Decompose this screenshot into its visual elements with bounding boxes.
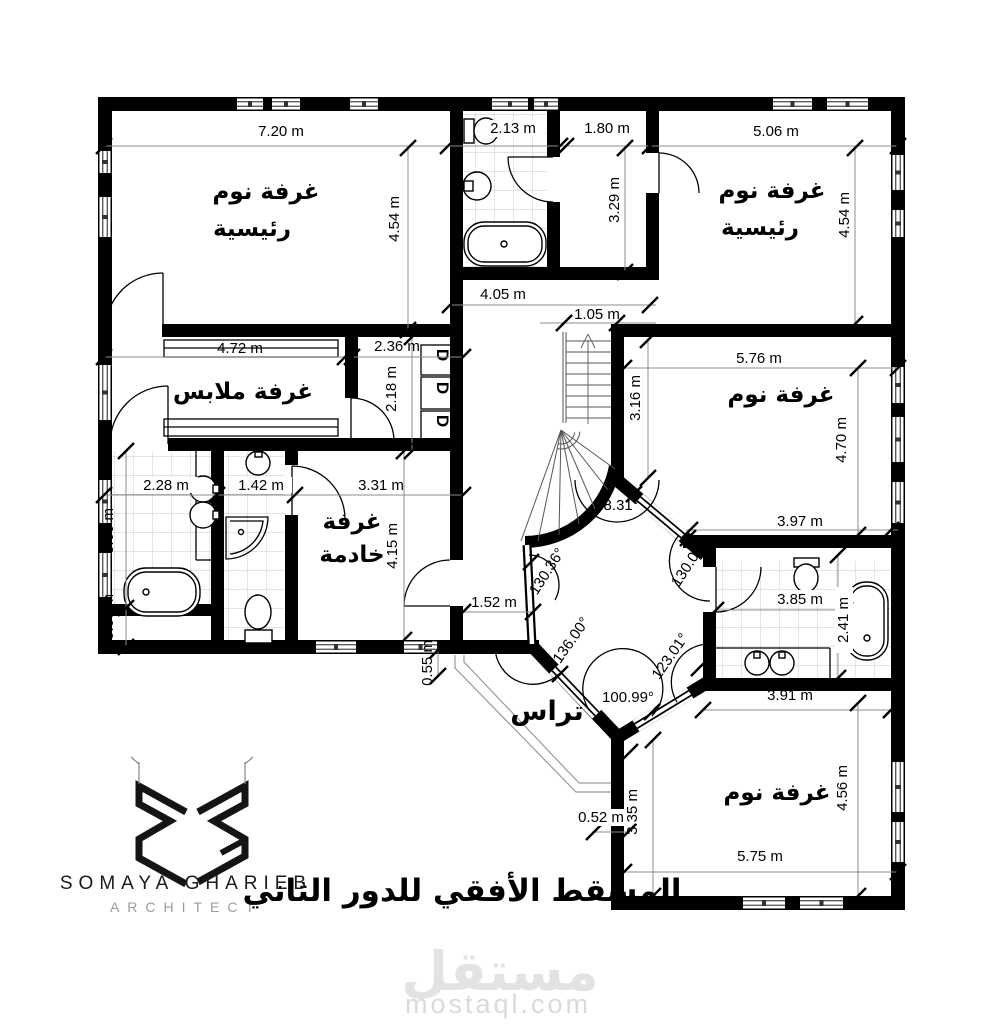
window [893, 762, 904, 812]
dim-5-76: 5.76 m [736, 350, 782, 367]
room-master-left-line2: رئيسية [213, 216, 291, 242]
closet-wardrobes: D D D [421, 345, 452, 441]
dim-2-18: 2.18 m [383, 366, 400, 412]
room-master-right-line2: رئيسية [721, 215, 799, 241]
room-master-right-line1: غرفة نوم [719, 178, 826, 204]
dim-0-60: 0.60 m [100, 594, 117, 640]
dim-4-56: 4.56 m [834, 765, 851, 811]
dim-4-54-left: 4.54 m [386, 196, 403, 242]
dim-2-13: 2.13 m [490, 120, 536, 137]
window [827, 99, 868, 110]
window [893, 155, 904, 190]
window [773, 99, 812, 110]
dim-3-16: 3.16 m [627, 375, 644, 421]
angle-123-01: 123.01° [648, 630, 692, 682]
closet-letter: D [433, 382, 452, 394]
sink-middle-bathroom [246, 451, 270, 475]
window [893, 417, 904, 462]
closet-letter: D [433, 349, 452, 361]
dim-1-80: 1.80 m [584, 120, 630, 137]
door-dressing-bathroom [110, 386, 168, 444]
room-maid-line2: خادمة [319, 542, 384, 568]
window [100, 365, 111, 420]
door-master-left [105, 273, 163, 331]
dim-1-52: 1.52 m [471, 594, 517, 611]
closet-letter: D [433, 415, 452, 427]
dim-3-91: 3.91 m [767, 687, 813, 704]
bathtub-left-bathroom [124, 568, 200, 616]
room-bedroom-bottom: غرفة نوم [724, 780, 831, 806]
dim-3-60: 3.60 m [100, 508, 117, 554]
dim-3-35: 3.35 m [624, 789, 641, 835]
window [100, 151, 111, 173]
toilet-right-bathroom [794, 558, 819, 592]
logo-mark-guides [131, 757, 253, 784]
dim-5-75: 5.75 m [737, 848, 783, 865]
watermark: مستقل mostaql.com [401, 940, 599, 1019]
sink-top-bathroom [463, 172, 491, 200]
dim-4-72: 4.72 m [217, 340, 263, 357]
dim-1-05: 1.05 m [574, 306, 620, 323]
dim-3-29: 3.29 m [606, 177, 623, 223]
logo-mark [139, 786, 245, 884]
dim-3-85: 3.85 m [777, 591, 823, 608]
window [893, 210, 904, 237]
angle-98-31: 98.31° [595, 497, 639, 514]
window [893, 822, 904, 862]
dim-5-06: 5.06 m [753, 123, 799, 140]
window [743, 898, 785, 909]
dim-2-36: 2.36 m [374, 338, 420, 355]
window [893, 482, 904, 523]
window [272, 99, 300, 110]
stair-direction-arrow [581, 334, 595, 424]
logo-role: ARCHITECT [110, 899, 262, 915]
window [316, 642, 356, 653]
toilet-middle-bathroom [245, 595, 272, 643]
dim-0-52: 0.52 m [578, 809, 624, 826]
window [100, 553, 111, 597]
dim-4-15: 4.15 m [384, 523, 401, 569]
room-maid-line1: غرفة [322, 509, 381, 535]
plan-caption: المسقط الأفقي للدور الثاني [242, 871, 681, 909]
dim-2-28: 2.28 m [143, 477, 189, 494]
window [534, 99, 558, 110]
dim-0-55: 0.55 m [419, 640, 436, 686]
door-master-right [659, 153, 699, 193]
window [100, 197, 111, 237]
room-bedroom-right: غرفة نوم [728, 382, 835, 408]
room-terrace: تراس [510, 696, 583, 727]
dim-tick [622, 744, 638, 760]
dim-2-41: 2.41 m [835, 597, 852, 643]
dim-4-54-right: 4.54 m [836, 192, 853, 238]
ang le-136-00: 136.00° [549, 614, 593, 666]
door-maid-room [404, 560, 450, 606]
floor-plan-svg: D D D [0, 0, 984, 1025]
angle-100-99: 100.99° [602, 689, 654, 706]
dim-3-31: 3.31 m [358, 477, 404, 494]
dim-4-70: 4.70 m [833, 417, 850, 463]
dim-4-05: 4.05 m [480, 286, 526, 303]
dim-3-97: 3.97 m [777, 513, 823, 530]
room-master-left-line1: غرفة نوم [213, 179, 320, 205]
window [492, 99, 528, 110]
room-dressing: غرفة ملابس [173, 379, 313, 405]
window [350, 99, 378, 110]
window [237, 99, 263, 110]
dim-7-20: 7.20 m [258, 123, 304, 140]
bathtub-top-bathroom [464, 222, 546, 266]
dim-1-42: 1.42 m [238, 477, 284, 494]
watermark-site: mostaql.com [405, 989, 591, 1019]
window [800, 898, 843, 909]
